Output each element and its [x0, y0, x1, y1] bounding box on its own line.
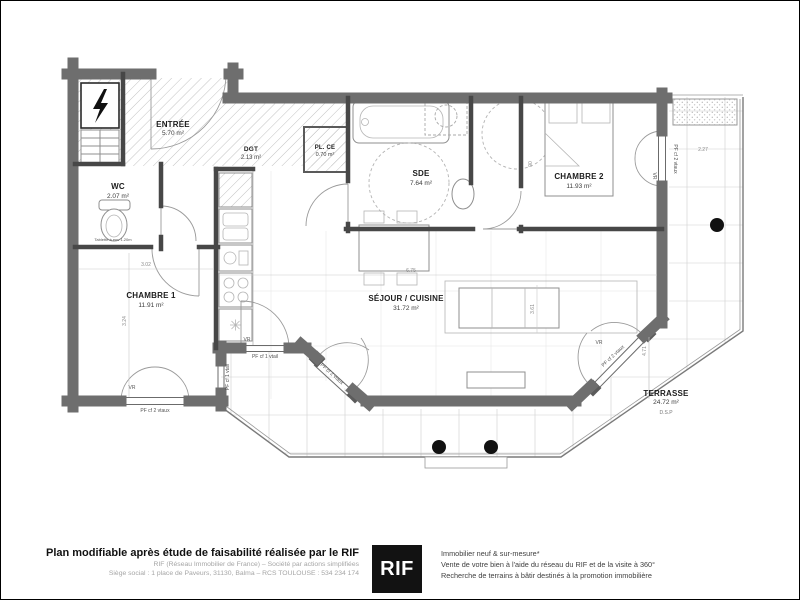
svg-text:31.72 m²: 31.72 m² — [393, 305, 419, 312]
window-label: PF cf 1 vtail — [252, 354, 278, 360]
footer-right-block: Immobilier neuf & sur-mesure* Vente de v… — [441, 549, 791, 582]
svg-text:2.07 m²: 2.07 m² — [107, 193, 130, 200]
footer-company-line: RIF (Réseau Immobilier de France) – Soci… — [39, 561, 359, 568]
shutter-label: VR — [651, 173, 657, 180]
rif-logo-text: RIF — [380, 558, 414, 581]
room-label-chambre1: CHAMBRE 1 — [126, 291, 176, 300]
entry-closet-shelves — [81, 130, 119, 164]
footer-title: Plan modifiable après étude de faisabili… — [39, 547, 359, 559]
floor-plan-sheet: ENTRÉE 5.70 m² DGT 2.13 m² PL. CE 0.70 m… — [0, 0, 800, 600]
wc-shelf-note: Tablette à env 1.20m — [94, 237, 132, 242]
footer-service-line-2: Vente de votre bien à l'aide du réseau d… — [441, 560, 791, 571]
room-label-terrasse: TERRASSE — [643, 389, 689, 398]
svg-text:3.61: 3.61 — [530, 304, 536, 314]
footer: Plan modifiable après étude de faisabili… — [1, 539, 800, 599]
footer-service-line-3: Recherche de terrains à bâtir destinés à… — [441, 571, 791, 582]
shutter-label: VR — [244, 337, 251, 343]
column-dot — [484, 440, 498, 454]
room-label-sejour: SÉJOUR / CUISINE — [368, 294, 444, 303]
floor-plan: ENTRÉE 5.70 m² DGT 2.13 m² PL. CE 0.70 m… — [1, 1, 800, 541]
column-dot — [710, 218, 724, 232]
oven — [219, 245, 252, 271]
room-label-wc: WC — [111, 182, 125, 191]
svg-text:90: 90 — [528, 161, 534, 167]
svg-text:11.91 m²: 11.91 m² — [138, 302, 164, 309]
svg-text:11.93 m²: 11.93 m² — [566, 183, 592, 190]
terrace-step — [425, 457, 507, 468]
tv-bench — [467, 372, 525, 388]
svg-text:24.72 m²: 24.72 m² — [653, 399, 679, 406]
room-label-entree: ENTRÉE — [156, 120, 190, 129]
electrical-panel — [81, 83, 119, 128]
cooktop — [219, 273, 252, 307]
window-label: PF cf 1 vtail — [225, 364, 231, 390]
shutter-label: VR — [596, 340, 603, 346]
room-label-chambre2: CHAMBRE 2 — [554, 172, 604, 181]
column-dot — [432, 440, 446, 454]
svg-text:2.27: 2.27 — [698, 147, 708, 153]
svg-text:D.S.P: D.S.P — [659, 410, 673, 416]
bed — [545, 97, 613, 196]
window-label: PF cf 2 vtaux — [140, 408, 170, 414]
svg-text:3.02: 3.02 — [141, 262, 151, 268]
svg-text:5.70 m²: 5.70 m² — [162, 130, 185, 137]
rif-logo: RIF — [372, 545, 422, 593]
svg-text:6.75: 6.75 — [406, 268, 416, 274]
fridge — [219, 173, 252, 207]
room-label-sde: SDE — [412, 169, 430, 178]
room-label-plce: PL. CE — [315, 145, 336, 151]
footer-left-block: Plan modifiable après étude de faisabili… — [39, 547, 359, 577]
svg-text:4.71: 4.71 — [642, 346, 648, 356]
kitchen-sink — [219, 209, 252, 243]
svg-text:0.70 m²: 0.70 m² — [316, 152, 335, 158]
bathtub — [353, 101, 449, 143]
svg-text:3.24: 3.24 — [122, 316, 128, 326]
planter-box — [673, 99, 737, 125]
room-label-dgt: DGT — [244, 146, 258, 153]
footer-address-line: Siège social : 1 place de Paveurs, 31130… — [39, 570, 359, 577]
shutter-label: VR — [129, 385, 136, 391]
svg-text:7.64 m²: 7.64 m² — [410, 180, 433, 187]
kitchen-counter — [219, 171, 253, 345]
footer-service-line-1: Immobilier neuf & sur-mesure* — [441, 549, 791, 560]
svg-text:2.13 m²: 2.13 m² — [241, 155, 261, 161]
window-label: PF cf 2 vtaux — [672, 144, 678, 174]
